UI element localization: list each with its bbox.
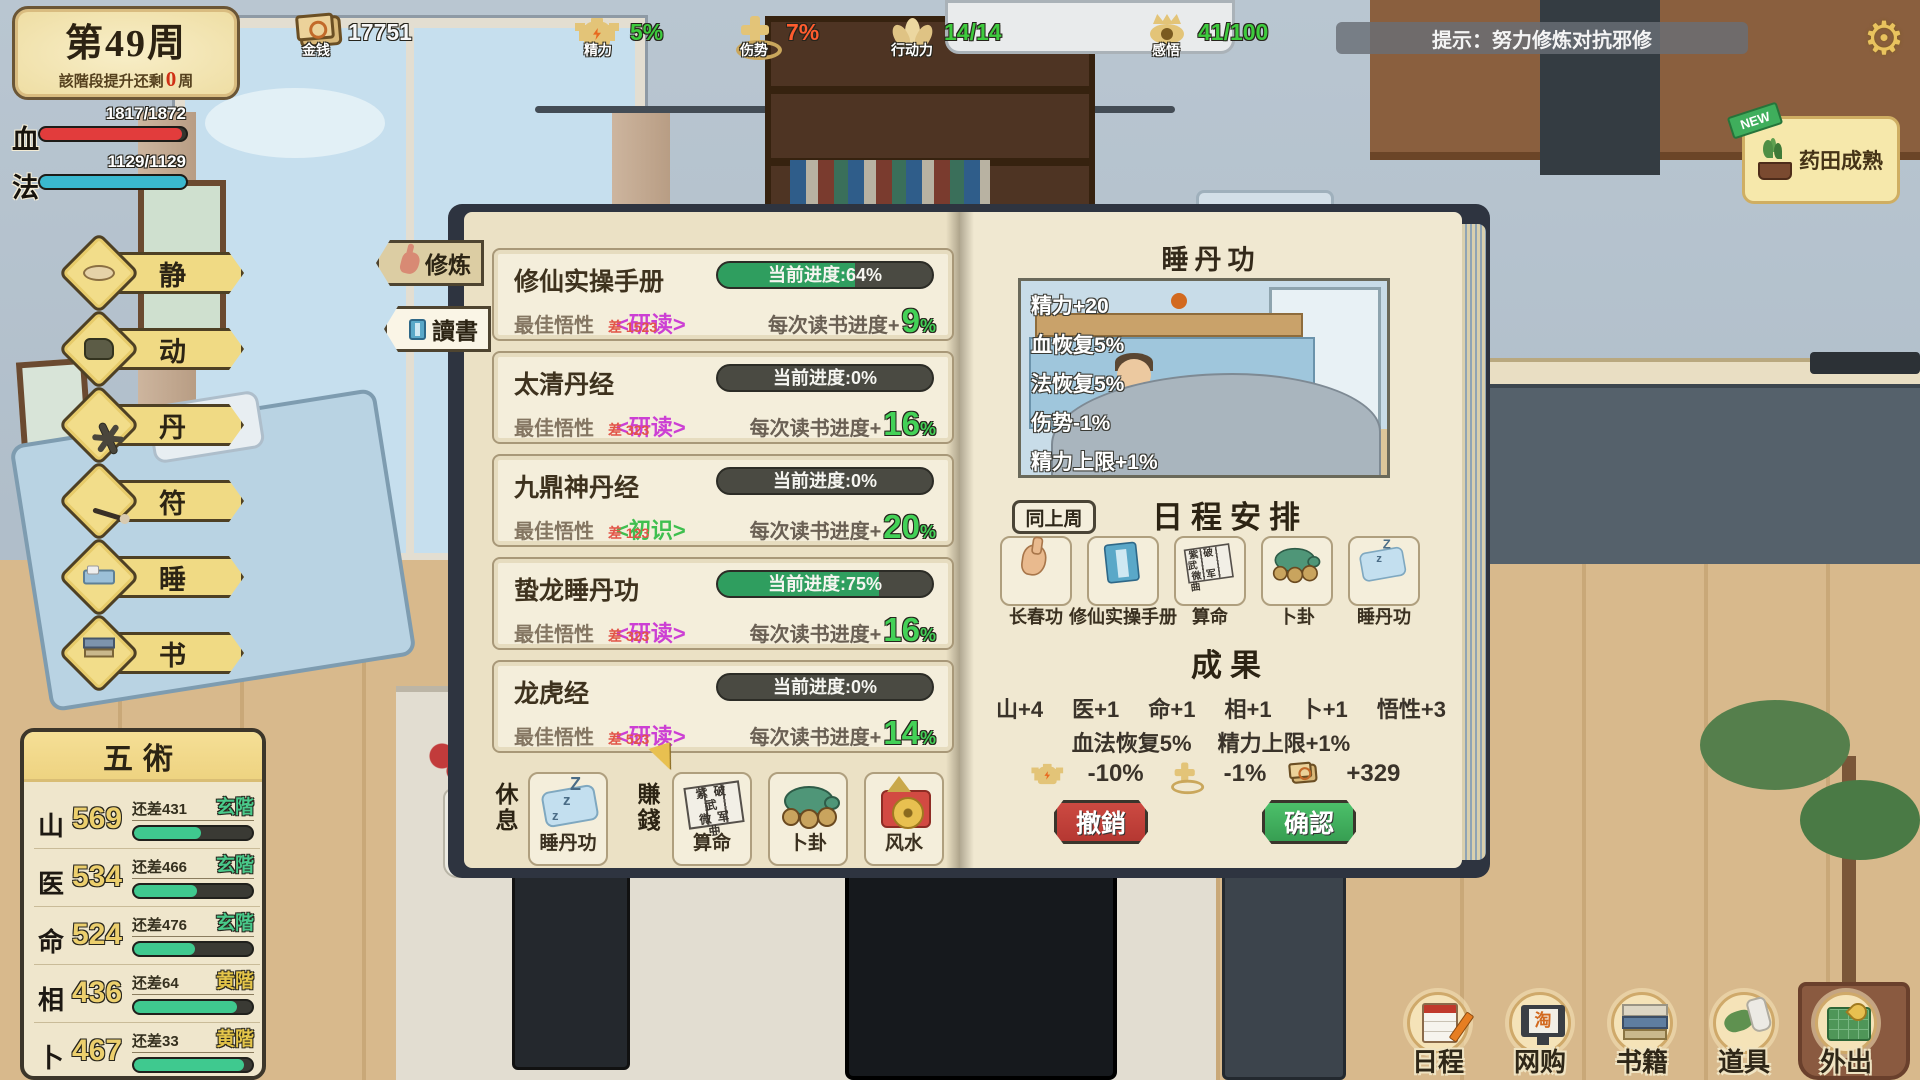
confirm-label: 确認 — [1284, 804, 1334, 840]
gain-value: 16 — [883, 405, 920, 443]
stat-injury: 伤势 7% — [728, 10, 819, 54]
five-arts-row-xiang: 相 436 还差64 黄階 — [24, 964, 262, 1019]
energy-label: 精力 — [572, 40, 624, 60]
action-card-fortune[interactable]: 紫破武 微军曲 算命 — [672, 772, 752, 866]
mp-bar-fill — [40, 176, 186, 188]
nav-shop-label: 网购 — [1488, 1042, 1592, 1079]
injury-cost: -1% — [1224, 760, 1267, 788]
shan-remain: 还差431 — [132, 798, 187, 819]
farm-notification[interactable]: NEW 药田成熟 — [1742, 116, 1900, 204]
aptitude-diff: 差 323 — [608, 626, 649, 646]
money-value: 17751 — [348, 19, 412, 46]
menu-jing-label: 静 — [159, 254, 186, 293]
result-stat: 医+1 — [1072, 692, 1119, 724]
book-entry-taiqing[interactable]: 太清丹经 当前进度:0% 最佳悟性 差 323 <研读> 每次读书进度+ 16 … — [492, 351, 954, 444]
pillow-icon: Z z — [1350, 538, 1406, 589]
illus-alarm-clock — [1171, 293, 1187, 309]
action-card-sleep[interactable]: Z z z 睡丹功 — [528, 772, 608, 866]
money-icon — [1288, 758, 1325, 790]
schedule-slot-divination[interactable] — [1261, 536, 1333, 606]
week-sub-prefix: 該階段提升还剩 — [59, 74, 164, 90]
blue-book-icon — [1089, 538, 1145, 589]
schedule-slot-sleep[interactable]: Z z — [1348, 536, 1420, 606]
xiang-bar — [132, 999, 254, 1015]
xiang-value: 436 — [72, 976, 122, 1010]
action-value: 14/14 — [944, 19, 1002, 46]
result-stat: 山+4 — [996, 692, 1043, 724]
ming-remain: 还差476 — [132, 914, 187, 935]
confirm-button[interactable]: 确認 — [1262, 800, 1356, 844]
hp-label: 血 — [12, 118, 39, 157]
yi-glyph: 医 — [38, 864, 64, 901]
gain-unit: % — [920, 316, 936, 337]
book-entry-longhu[interactable]: 龙虎经 当前进度:0% 最佳悟性 差 523 <研读> 每次读书进度+ 14 % — [492, 660, 954, 753]
xiang-remain: 还差64 — [132, 972, 179, 993]
effect-line: 精力+20 — [1031, 287, 1158, 326]
entry-progress-bar: 当前进度:0% — [716, 364, 934, 392]
energy-cost: -10% — [1088, 760, 1144, 788]
yi-bar — [132, 883, 254, 899]
yi-value: 534 — [72, 860, 122, 894]
schedule-slot-label: 睡丹功 — [1329, 608, 1439, 627]
bag-icon — [84, 338, 114, 360]
ming-value: 524 — [72, 918, 122, 952]
hand-icon — [1002, 538, 1058, 589]
sleep-skill-illustration: 精力+20 血恢复5% 法恢复5% 伤势-1% 精力上限+1% — [1018, 278, 1390, 478]
bu-value: 467 — [72, 1034, 122, 1068]
five-arts-title: 五術 — [24, 732, 262, 782]
energy-icon — [1029, 758, 1066, 790]
injury-label: 伤势 — [728, 40, 780, 60]
gain-value: 20 — [883, 508, 920, 546]
earn-label: 賺錢 — [636, 782, 662, 834]
energy-icon: 精力 — [572, 10, 624, 54]
insight-label: 感悟 — [1140, 40, 1192, 60]
result-stat: 命+1 — [1148, 692, 1195, 724]
nav-go-out-label: 外出 — [1794, 1042, 1898, 1079]
best-aptitude-label: 最佳悟性 — [514, 721, 594, 750]
results-title: 成果 — [1060, 640, 1400, 685]
result-stat: 相+1 — [1225, 692, 1272, 724]
turtle-icon — [1263, 538, 1319, 589]
tab-cultivate[interactable]: 修炼 — [376, 240, 484, 286]
shan-rank: 玄階 — [216, 792, 254, 819]
injury-value: 7% — [786, 19, 819, 46]
entry-title: 修仙实操手册 — [514, 262, 664, 298]
cancel-button[interactable]: 撤銷 — [1054, 800, 1148, 844]
nav-go-out[interactable]: 外出 — [1794, 992, 1898, 1079]
book-page-edges — [1462, 224, 1486, 860]
game-screen: 第49周 該階段提升还剩0周 1817/1872 血 1129/1129 法 金… — [0, 0, 1920, 1080]
aptitude-diff: 差 1523 — [608, 317, 657, 337]
action-icon: 行动力 — [886, 10, 938, 54]
books-icon — [84, 649, 114, 658]
ming-rank: 玄階 — [216, 908, 254, 935]
aptitude-diff: 差 323 — [608, 420, 649, 440]
week-sub-value: 0 — [164, 67, 179, 91]
result-stat: 悟性+3 — [1377, 692, 1446, 724]
entry-progress-text: 当前进度:0% — [718, 675, 932, 699]
card-label: 算命 — [674, 834, 750, 853]
injury-icon — [1165, 758, 1202, 790]
schedule-slot-fortune[interactable]: 紫破武 微军曲 — [1174, 536, 1246, 606]
five-arts-panel: 五術 山 569 还差431 玄階 医 534 还差466 玄階 命 524 还 — [20, 728, 266, 1080]
fengshui-compass-icon — [866, 774, 942, 836]
action-label: 行动力 — [886, 40, 938, 60]
gain-unit: % — [920, 728, 936, 749]
z-glyph: z — [1376, 551, 1382, 564]
best-aptitude-label: 最佳悟性 — [514, 309, 594, 338]
bg-plant-leaves — [1700, 700, 1850, 790]
gain-unit: % — [920, 625, 936, 646]
shan-value: 569 — [72, 802, 122, 836]
cushion-icon — [83, 265, 115, 281]
schedule-slot-manual[interactable] — [1087, 536, 1159, 606]
nav-schedule-label: 日程 — [1386, 1042, 1490, 1079]
mp-value: 1129/1129 — [36, 152, 186, 172]
results-costs: -10% -1% +329 — [960, 752, 1462, 796]
week-title: 第49周 — [15, 12, 237, 67]
nav-books[interactable]: 书籍 — [1590, 992, 1694, 1079]
bu-rank: 黄階 — [216, 1024, 254, 1051]
effect-line: 血恢复5% — [1031, 326, 1158, 365]
energy-value: 5% — [630, 19, 663, 46]
tab-reading-label: 讀書 — [432, 312, 478, 346]
gain-label: 每次读书进度+ — [750, 721, 882, 750]
tab-reading[interactable]: 讀書 — [384, 306, 491, 352]
card-label: 风水 — [866, 834, 942, 853]
book-entry-zhelong[interactable]: 蛰龙睡丹功 当前进度:75% 最佳悟性 差 323 <研读> 每次读书进度+ 1… — [492, 557, 954, 650]
fortune-chart-icon: 紫破武 微军曲 — [1176, 538, 1232, 589]
gain-unit: % — [920, 419, 936, 440]
shan-bar — [132, 825, 254, 841]
gain-label: 每次读书进度+ — [750, 515, 882, 544]
aptitude-diff: 差 123 — [608, 523, 649, 543]
z-glyph: Z — [1383, 538, 1391, 553]
yi-remain: 还差466 — [132, 856, 187, 877]
xiang-rank: 黄階 — [216, 966, 254, 993]
shan-glyph: 山 — [38, 806, 64, 843]
z-glyph: z — [552, 808, 559, 823]
gain-label: 每次读书进度+ — [768, 309, 900, 338]
rest-label: 休息 — [494, 782, 520, 834]
result-stat: 卜+1 — [1301, 692, 1348, 724]
bg-plant-leaves-2 — [1800, 780, 1920, 860]
entry-progress-bar: 当前进度:0% — [716, 673, 934, 701]
bed-icon — [83, 570, 115, 585]
entry-progress-text: 当前进度:64% — [718, 263, 932, 287]
entry-progress-text: 当前进度:0% — [718, 469, 932, 493]
ming-glyph: 命 — [38, 922, 64, 959]
stat-insight: 感悟 41/100 — [1140, 10, 1268, 54]
fortune-chart-icon: 紫破武 微军曲 — [674, 774, 750, 836]
entry-progress-text: 当前进度:75% — [718, 572, 932, 596]
gain-unit: % — [920, 522, 936, 543]
hint-bar: 提示：努力修炼对抗邪修 — [1336, 22, 1748, 54]
effect-line: 伤势-1% — [1031, 404, 1158, 443]
insight-value: 41/100 — [1198, 19, 1268, 46]
yi-rank: 玄階 — [216, 850, 254, 877]
gain-value: 14 — [883, 714, 920, 752]
turtle-icon — [770, 774, 846, 836]
skill-effects: 精力+20 血恢复5% 法恢复5% 伤势-1% 精力上限+1% — [1031, 287, 1158, 478]
nav-books-label: 书籍 — [1590, 1042, 1694, 1079]
z-glyph: z — [563, 792, 571, 809]
best-aptitude-label: 最佳悟性 — [514, 412, 594, 441]
menu-shu-label: 书 — [159, 634, 186, 673]
five-arts-row-bu: 卜 467 还差33 黄階 — [24, 1022, 262, 1077]
talisman-brush-icon — [92, 507, 126, 522]
entry-title: 蛰龙睡丹功 — [514, 571, 639, 607]
injury-icon: 伤势 — [728, 10, 780, 54]
hp-value: 1817/1872 — [36, 104, 186, 124]
money-gain: +329 — [1346, 760, 1400, 788]
stat-action: 行动力 14/14 — [886, 10, 1002, 54]
five-arts-row-shan: 山 569 还差431 玄階 — [24, 790, 262, 845]
entry-title: 太清丹经 — [514, 365, 614, 401]
gain-value: 9 — [902, 302, 920, 340]
nav-shop[interactable]: 淘 网购 — [1488, 992, 1592, 1079]
aptitude-diff: 差 523 — [608, 729, 649, 749]
entry-progress-text: 当前进度:0% — [718, 366, 932, 390]
herb-field-icon — [1755, 140, 1791, 180]
insight-icon: 感悟 — [1140, 10, 1192, 54]
book-entry-jiuding[interactable]: 九鼎神丹经 当前进度:0% 最佳悟性 差 123 <初识> 每次读书进度+ 20… — [492, 454, 954, 547]
hint-text: 提示：努力修炼对抗邪修 — [1432, 24, 1652, 53]
bu-bar — [132, 1057, 254, 1073]
gain-label: 每次读书进度+ — [750, 412, 882, 441]
bg-monitor — [845, 850, 1117, 1080]
tab-cultivate-label: 修炼 — [425, 246, 471, 280]
nav-schedule[interactable]: 日程 — [1386, 992, 1490, 1079]
action-card-fengshui[interactable]: 风水 — [864, 772, 944, 866]
mp-bar — [38, 174, 188, 190]
effect-line: 精力上限+1% — [1031, 443, 1158, 478]
menu-jing-badge[interactable] — [58, 232, 140, 314]
week-sub-suffix: 周 — [178, 74, 193, 90]
gain-value: 16 — [883, 611, 920, 649]
bu-glyph: 卜 — [38, 1038, 64, 1075]
stat-energy: 精力 5% — [572, 10, 663, 54]
effect-line: 法恢复5% — [1031, 365, 1158, 404]
results-stats: 山+4 医+1 命+1 相+1 卜+1 悟性+3 — [996, 692, 1446, 724]
money-label: 金钱 — [290, 40, 342, 60]
menu-fu-label: 符 — [159, 482, 186, 521]
pillow-icon: Z z z — [530, 774, 606, 836]
bg-stove — [1810, 352, 1920, 374]
week-badge: 第49周 該階段提升还剩0周 — [12, 6, 240, 100]
xiang-glyph: 相 — [38, 980, 64, 1017]
settings-gear-icon[interactable]: ⚙ — [1856, 10, 1912, 66]
taobao-char: 淘 — [1529, 1009, 1558, 1033]
entry-title: 九鼎神丹经 — [514, 468, 639, 504]
stat-money: 金钱 17751 — [290, 10, 412, 54]
gain-label: 每次读书进度+ — [750, 618, 882, 647]
five-arts-row-yi: 医 534 还差466 玄階 — [24, 848, 262, 903]
card-label: 卜卦 — [770, 834, 846, 853]
five-arts-row-ming: 命 524 还差476 玄階 — [24, 906, 262, 961]
cancel-label: 撤銷 — [1076, 804, 1126, 840]
farm-notification-text: 药田成熟 — [1799, 145, 1883, 175]
menu-shui-label: 睡 — [159, 558, 186, 597]
menu-dan-label: 丹 — [159, 406, 186, 445]
mp-label: 法 — [12, 166, 39, 205]
nav-items[interactable]: 道具 — [1692, 992, 1796, 1079]
money-icon: 金钱 — [290, 10, 342, 54]
hp-bar — [38, 126, 188, 142]
entry-title: 龙虎经 — [514, 674, 589, 710]
book-entry-xiuxian-manual[interactable]: 修仙实操手册 当前进度:64% 最佳悟性 差 1523 <研读> 每次读书进度+… — [492, 248, 954, 341]
best-aptitude-label: 最佳悟性 — [514, 618, 594, 647]
menu-dong-label: 动 — [159, 330, 186, 369]
entry-progress-bar: 当前进度:64% — [716, 261, 934, 289]
action-card-divination[interactable]: 卜卦 — [768, 772, 848, 866]
best-aptitude-label: 最佳悟性 — [514, 515, 594, 544]
herb-pill-icon — [99, 423, 118, 455]
schedule-title: 日程安排 — [1060, 492, 1400, 537]
bu-remain: 还差33 — [132, 1030, 179, 1051]
nav-items-label: 道具 — [1692, 1042, 1796, 1079]
ming-bar — [132, 941, 254, 957]
z-glyph: Z — [570, 774, 581, 795]
entry-progress-bar: 当前进度:75% — [716, 570, 934, 598]
week-subtitle: 該階段提升还剩0周 — [15, 67, 237, 92]
detail-title: 睡丹功 — [960, 238, 1462, 277]
book-icon — [409, 319, 426, 340]
entry-progress-bar: 当前进度:0% — [716, 467, 934, 495]
hand-icon — [399, 250, 422, 276]
card-label: 睡丹功 — [530, 834, 606, 853]
schedule-slot-changchun[interactable] — [1000, 536, 1072, 606]
fortune-grid-row: 微军曲 — [1188, 566, 1233, 593]
hp-bar-fill — [40, 128, 182, 140]
